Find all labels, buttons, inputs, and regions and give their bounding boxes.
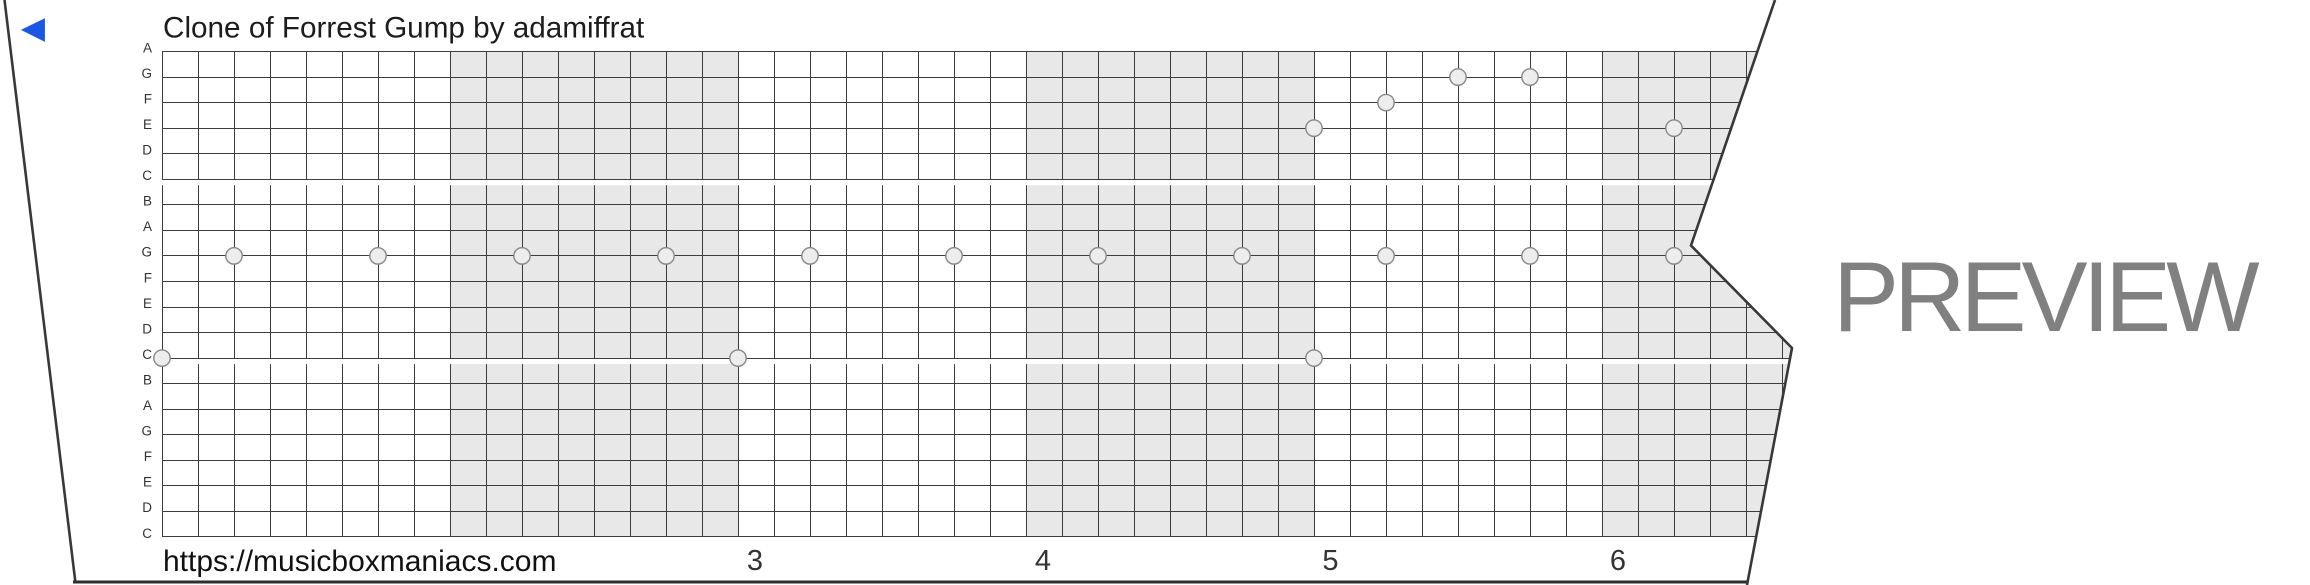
svg-text:C: C — [142, 168, 152, 183]
svg-text:C: C — [142, 347, 152, 362]
svg-text:G: G — [141, 424, 152, 439]
svg-text:PREVIEW: PREVIEW — [1833, 241, 2260, 352]
svg-text:3: 3 — [747, 545, 763, 577]
svg-text:E: E — [143, 475, 152, 490]
svg-text:B: B — [143, 194, 152, 209]
svg-text:F: F — [144, 270, 152, 285]
svg-text:B: B — [143, 372, 152, 387]
svg-text:C: C — [142, 526, 152, 541]
svg-text:E: E — [143, 117, 152, 132]
svg-text:Clone of Forrest Gump by adami: Clone of Forrest Gump by adamiffrat — [163, 12, 645, 45]
svg-text:A: A — [143, 40, 152, 55]
svg-text:https://musicboxmaniacs.com: https://musicboxmaniacs.com — [163, 545, 556, 578]
svg-text:6: 6 — [1610, 545, 1626, 577]
svg-text:D: D — [142, 143, 152, 158]
svg-text:G: G — [141, 66, 152, 81]
svg-text:D: D — [142, 321, 152, 336]
svg-text:A: A — [143, 219, 152, 234]
svg-text:D: D — [142, 500, 152, 515]
svg-text:F: F — [144, 449, 152, 464]
svg-text:E: E — [143, 296, 152, 311]
svg-text:A: A — [143, 398, 152, 413]
svg-text:G: G — [141, 245, 152, 260]
svg-text:F: F — [144, 91, 152, 106]
svg-text:5: 5 — [1322, 545, 1338, 577]
svg-text:4: 4 — [1035, 545, 1051, 577]
